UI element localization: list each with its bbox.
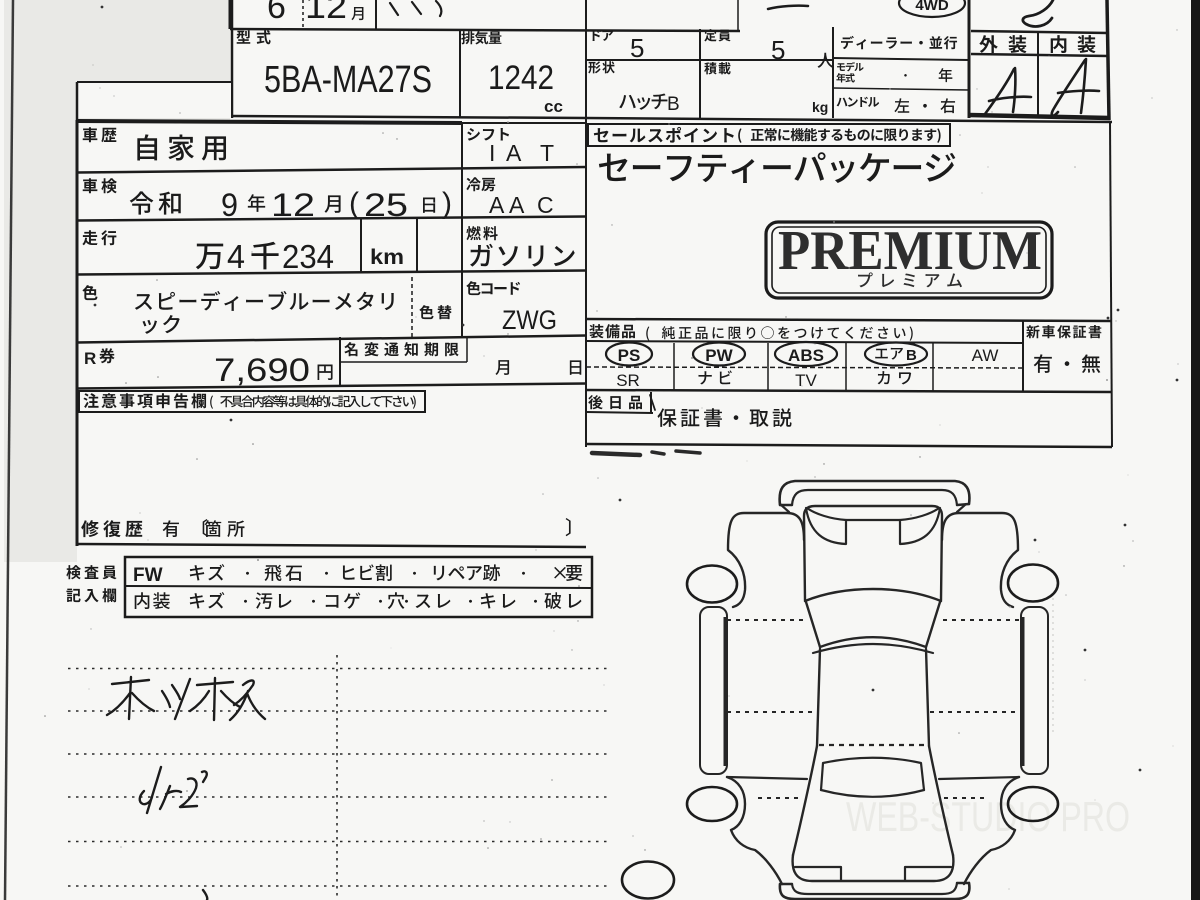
- svg-text:A: A: [506, 140, 522, 166]
- svg-text:(: (: [349, 187, 359, 220]
- svg-text:ABS: ABS: [788, 346, 824, 365]
- svg-text:C: C: [537, 192, 554, 218]
- svg-text:A: A: [489, 192, 505, 218]
- svg-text:234: 234: [282, 238, 334, 275]
- svg-text:12: 12: [305, 0, 347, 26]
- svg-text:7,690: 7,690: [214, 352, 310, 388]
- svg-text:5BA-MA27S: 5BA-MA27S: [264, 59, 432, 101]
- svg-text:FW: FW: [133, 565, 163, 586]
- svg-text:5: 5: [630, 33, 644, 63]
- svg-text:T: T: [540, 140, 554, 166]
- svg-text:1242: 1242: [488, 59, 554, 97]
- svg-text:): ): [442, 187, 452, 220]
- svg-text:km: km: [370, 246, 404, 269]
- svg-text:5: 5: [771, 35, 785, 65]
- svg-text:ZWG: ZWG: [502, 305, 557, 335]
- svg-text:AW: AW: [972, 346, 999, 365]
- svg-text:PW: PW: [705, 346, 733, 365]
- svg-text:I: I: [489, 140, 495, 166]
- svg-text:B: B: [667, 94, 680, 115]
- svg-text:B: B: [906, 347, 917, 364]
- svg-text:6: 6: [267, 0, 286, 26]
- svg-text:9: 9: [221, 187, 238, 223]
- svg-text:WEB-STUDIO PRO: WEB-STUDIO PRO: [846, 793, 1130, 840]
- svg-text:A: A: [509, 192, 525, 218]
- svg-text:R: R: [84, 349, 96, 368]
- svg-text:4: 4: [227, 238, 245, 275]
- svg-text:4WD: 4WD: [915, 0, 949, 14]
- svg-text:kg: kg: [812, 99, 828, 115]
- svg-text:TV: TV: [795, 371, 817, 390]
- svg-text:PS: PS: [618, 346, 641, 365]
- svg-text:cc: cc: [544, 97, 563, 116]
- svg-text:PREMIUM: PREMIUM: [778, 220, 1042, 282]
- svg-text:SR: SR: [616, 371, 640, 390]
